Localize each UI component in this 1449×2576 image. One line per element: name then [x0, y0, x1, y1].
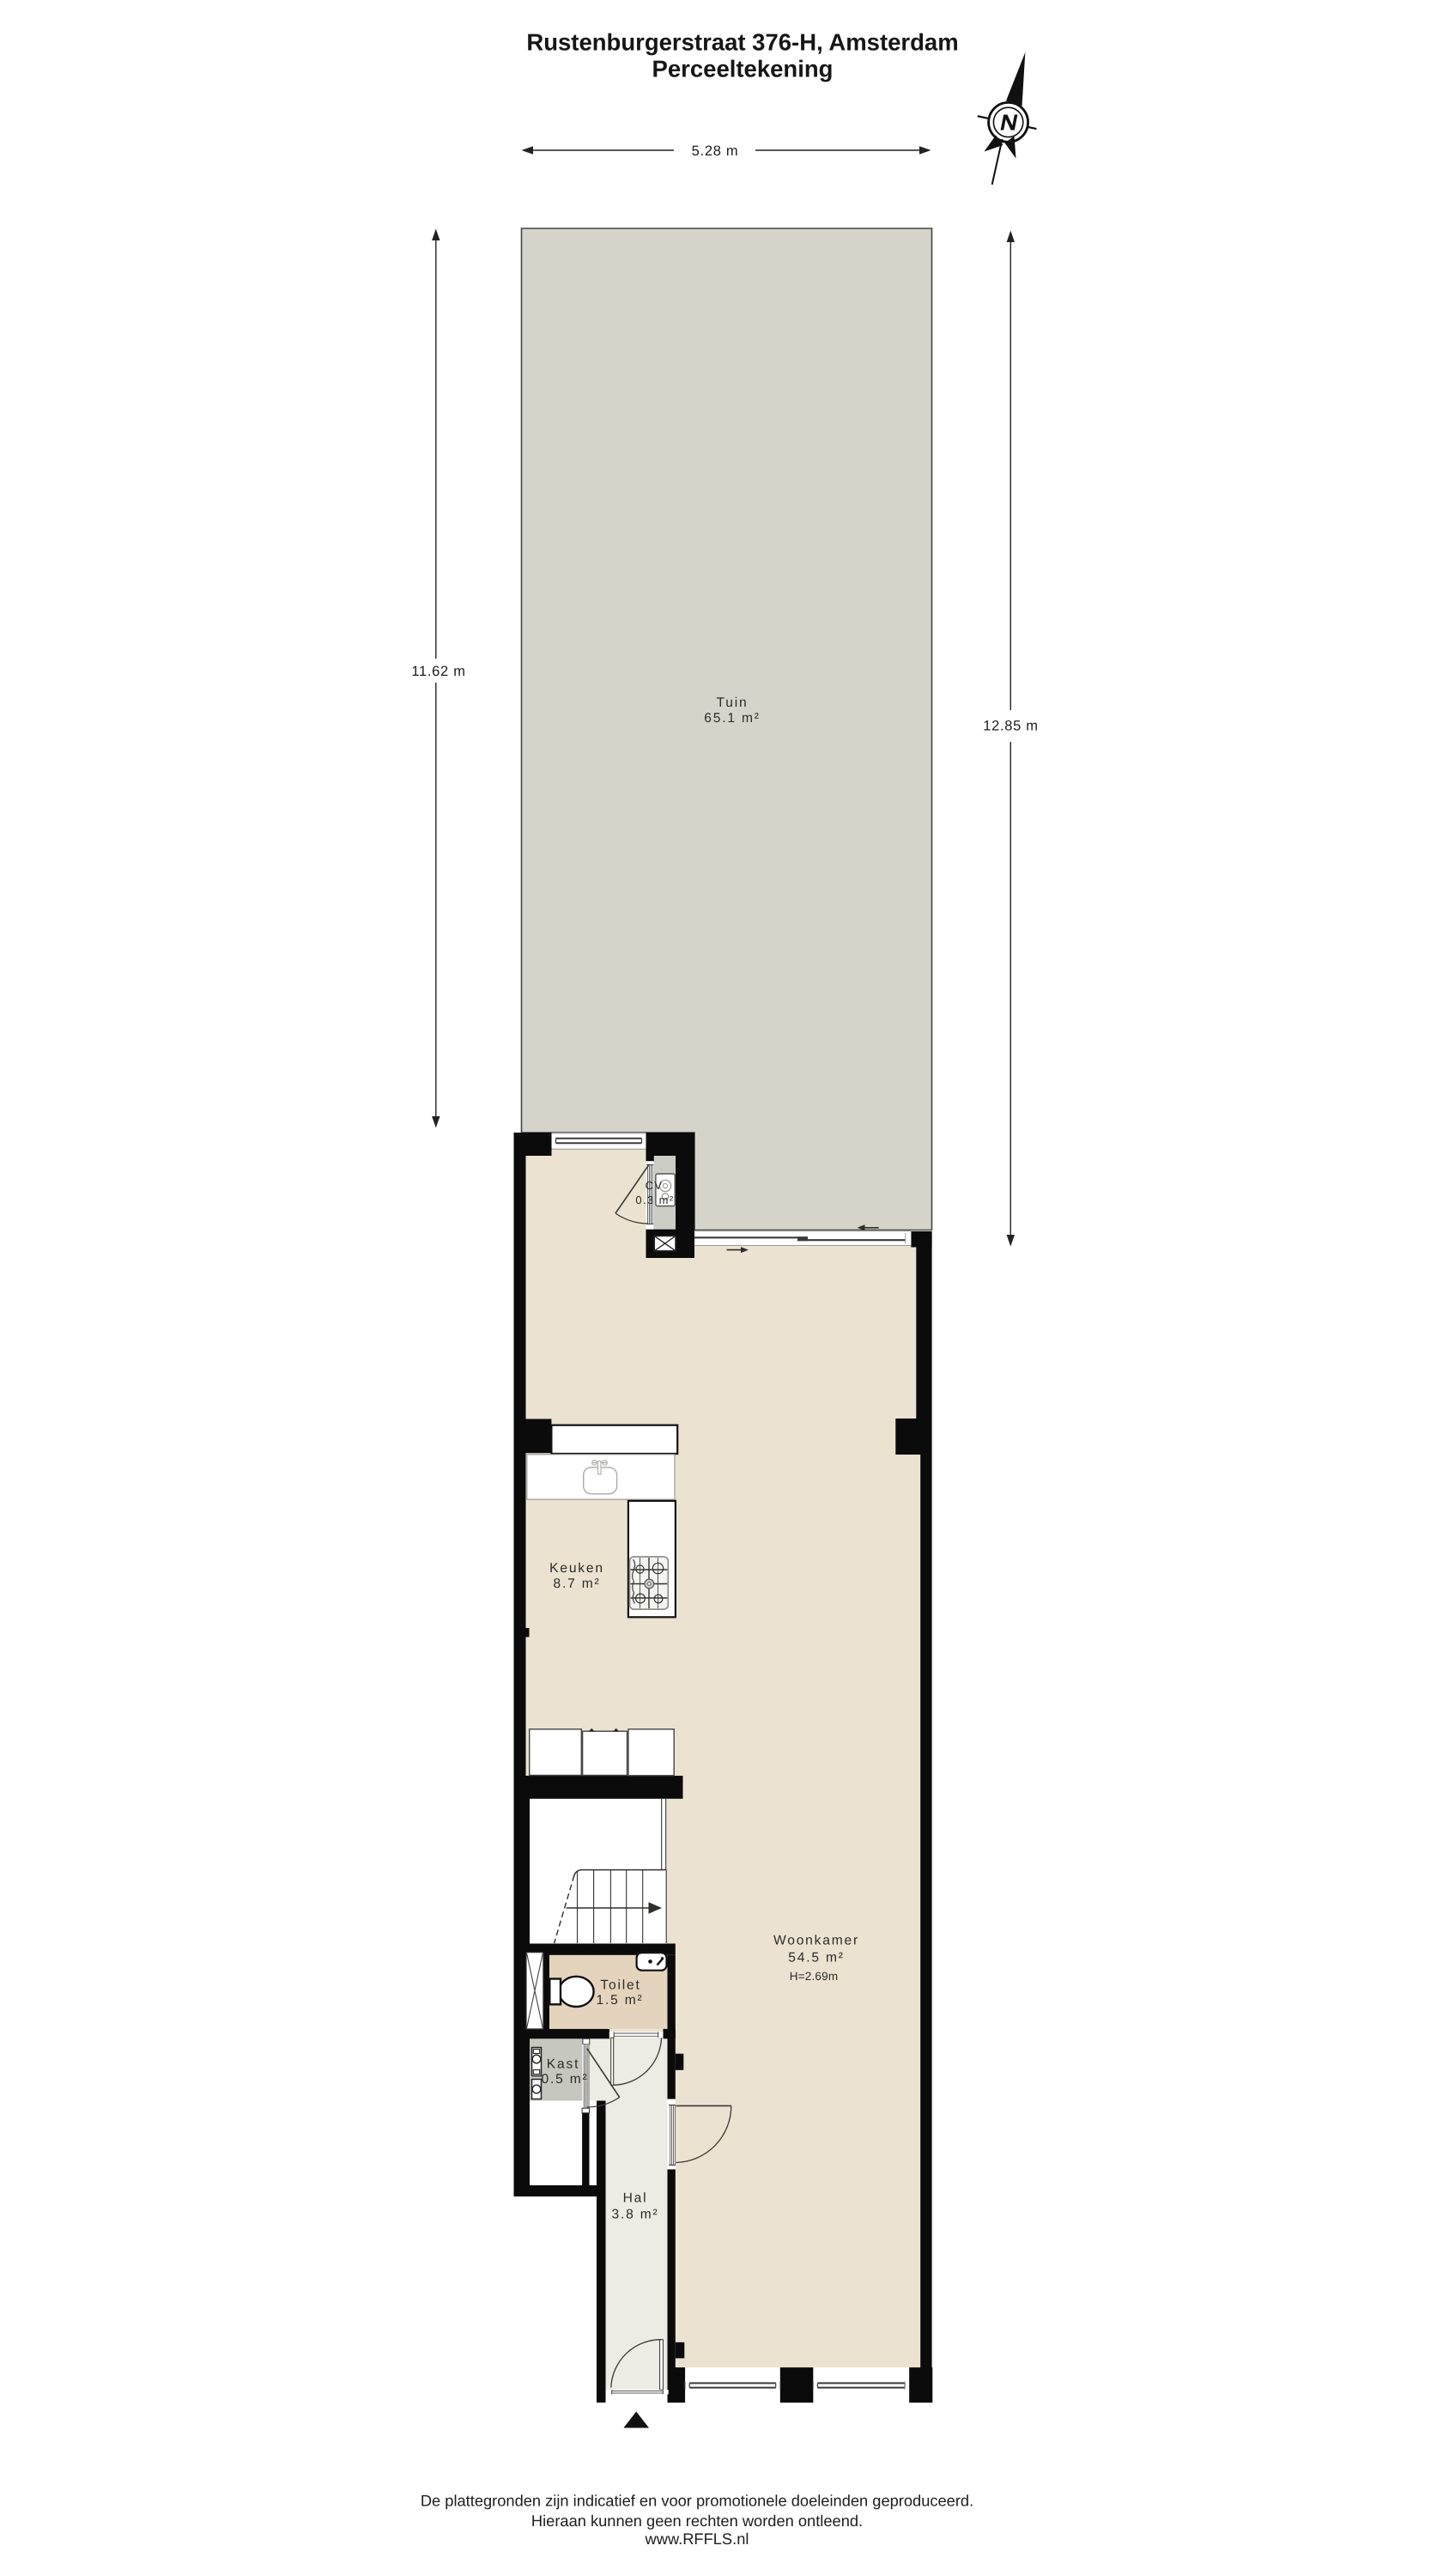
- svg-text:0.3 m²: 0.3 m²: [635, 1194, 674, 1206]
- svg-text:3.8 m²: 3.8 m²: [612, 2208, 659, 2222]
- svg-text:Woonkamer: Woonkamer: [773, 1934, 859, 1948]
- svg-text:Keuken: Keuken: [549, 1561, 604, 1576]
- svg-text:Tuin: Tuin: [717, 696, 749, 710]
- svg-text:1.5 m²: 1.5 m²: [597, 1993, 644, 2008]
- svg-text:0.5 m²: 0.5 m²: [542, 2072, 589, 2087]
- svg-text:Kast: Kast: [547, 2057, 579, 2072]
- svg-text:8.7 m²: 8.7 m²: [554, 1577, 601, 1591]
- svg-text:Hal: Hal: [623, 2191, 648, 2206]
- svg-text:Toilet: Toilet: [600, 1978, 640, 1993]
- svg-text:Rustenburgerstraat 376-H, Amst: Rustenburgerstraat 376-H, Amsterdam: [526, 29, 958, 56]
- svg-text:11.62 m: 11.62 m: [411, 664, 465, 679]
- svg-text:Hieraan kunnen geen rechten wo: Hieraan kunnen geen rechten worden ontle…: [531, 2512, 863, 2530]
- svg-text:CV: CV: [646, 1179, 664, 1192]
- svg-text:65.1 m²: 65.1 m²: [704, 711, 760, 726]
- svg-text:54.5 m²: 54.5 m²: [788, 1951, 844, 1965]
- svg-text:5.28 m: 5.28 m: [692, 143, 739, 159]
- svg-text:www.RFFLS.nl: www.RFFLS.nl: [645, 2530, 749, 2548]
- svg-text:Perceeltekening: Perceeltekening: [652, 56, 834, 82]
- svg-text:H=2.69m: H=2.69m: [790, 1970, 839, 1983]
- svg-text:De plattegronden zijn indicati: De plattegronden zijn indicatief en voor…: [421, 2492, 973, 2510]
- svg-text:12.85 m: 12.85 m: [983, 718, 1039, 733]
